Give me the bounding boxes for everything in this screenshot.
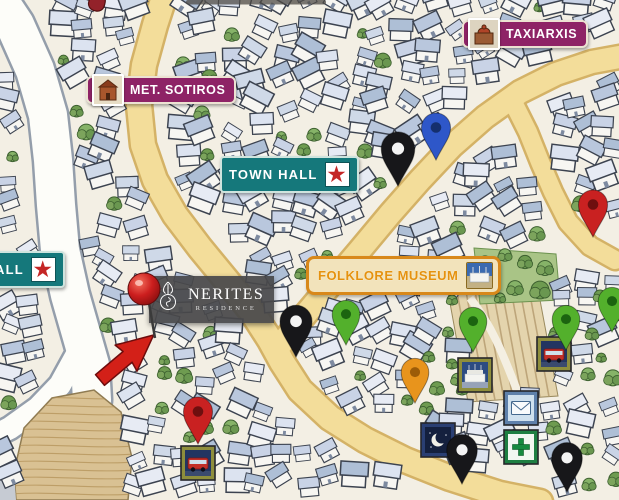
photo-marker-night[interactable] [421,423,455,457]
landmark-taxiarxis[interactable]: TAXIARXIS [462,20,588,48]
taxiarxis-photo-icon [468,18,500,50]
red-star-icon: ★ [31,257,56,282]
photo-marker-bus-west[interactable] [181,446,215,480]
photo-marker-post[interactable] [504,391,538,425]
landmark-town-hall-partial[interactable]: ALL ★ [0,251,65,288]
town-hall-partial-label: ALL [0,262,24,277]
met-sotiros-photo-icon [92,74,124,106]
town-hall-label: TOWN HALL [229,167,318,182]
met-sotiros-label: MET. SOTIROS [130,83,225,97]
nerites-logo-icon [156,280,180,319]
landmark-town-hall[interactable]: TOWN HALL ★ [220,156,359,193]
nerites-name: NERITES [188,287,264,304]
landmark-met-sotiros[interactable]: MET. SOTIROS [86,76,236,104]
red-star-icon: ★ [325,162,350,187]
photo-marker-building[interactable] [458,358,492,392]
photo-marker-bus-east[interactable] [537,337,571,371]
folklore-museum-label: FOLKLORE MUSEUM [318,268,458,283]
landmark-folklore-museum[interactable]: FOLKLORE MUSEUM [306,256,501,295]
folklore-museum-photo-icon [466,262,493,289]
taxiarxis-label: TAXIARXIS [506,27,577,41]
photo-marker-pharmacy[interactable] [504,430,538,464]
nerites-subtitle: RESIDENCE [196,305,257,312]
nerites-residence-badge[interactable]: NERITES RESIDENCE [149,276,274,323]
illustrated-town-map: MET. SOTIROS TAXIARXIS TOWN HALL ★ ALL ★… [0,0,619,500]
